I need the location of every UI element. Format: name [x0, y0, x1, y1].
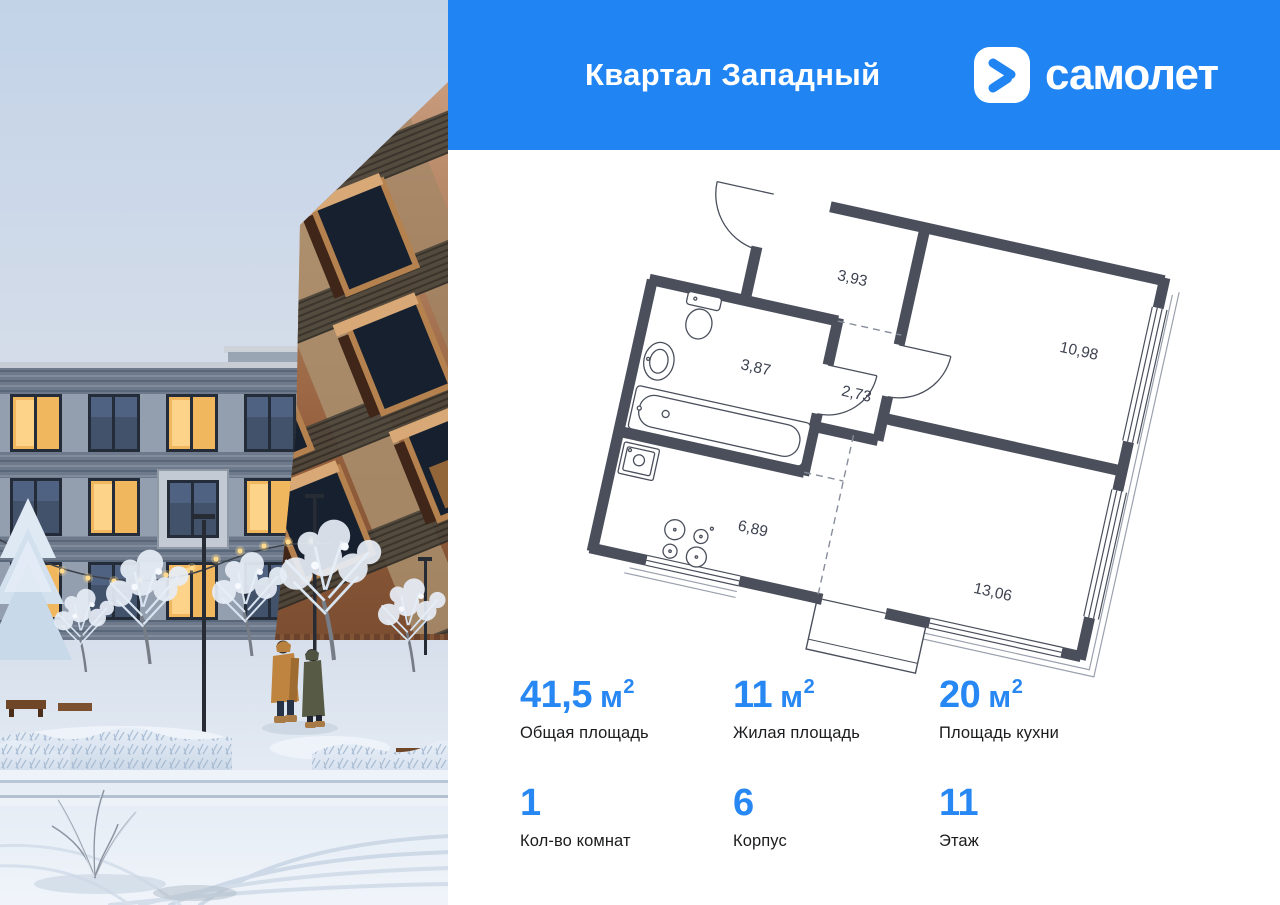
steps — [0, 770, 448, 808]
stat-rooms-count: 1 Кол-во комнат — [520, 784, 733, 851]
header: Квартал Западный самолет — [448, 0, 1280, 150]
courtyard-photo — [0, 0, 448, 905]
stat-building: 6 Корпус — [733, 784, 939, 851]
floor-plan-drawing: 3,93 10,98 3,87 2,73 6,89 13,06 — [548, 172, 1208, 702]
stat-living-area: 11м2 Жилая площадь — [733, 676, 939, 743]
stat-living-area-label: Жилая площадь — [733, 724, 939, 743]
stat-floor: 11 Этаж — [939, 784, 1159, 851]
stat-building-label: Корпус — [733, 832, 939, 851]
stats-row-areas: 41,5м2 Общая площадь 11м2 Жилая площадь … — [520, 676, 1159, 743]
samolet-chevron-glyph — [974, 47, 1030, 103]
brand-name: самолет — [1045, 53, 1218, 97]
stat-kitchen-area-value: 20 — [939, 674, 980, 716]
stat-living-area-value: 11 — [733, 674, 772, 716]
stat-total-area-value: 41,5 — [520, 674, 592, 716]
stat-rooms-count-label: Кол-во комнат — [520, 832, 733, 851]
stats-row-details: 1 Кол-во комнат 6 Корпус 11 Этаж — [520, 784, 1159, 851]
brand-logo: самолет — [974, 0, 1218, 150]
kitchen-sink-icon — [618, 442, 660, 481]
stat-floor-value: 11 — [939, 782, 978, 824]
info-panel: Квартал Западный самолет — [448, 0, 1280, 905]
stat-kitchen-area-label: Площадь кухни — [939, 724, 1159, 743]
project-title: Квартал Западный — [585, 0, 880, 150]
people-shadow — [262, 721, 338, 735]
stat-floor-label: Этаж — [939, 832, 1159, 851]
flyer: Квартал Западный самолет — [0, 0, 1280, 905]
floor-plan: 3,93 10,98 3,87 2,73 6,89 13,06 — [548, 172, 1208, 702]
samolet-chevron-icon — [974, 47, 1030, 103]
stat-building-value: 6 — [733, 782, 754, 824]
stat-total-area: 41,5м2 Общая площадь — [520, 676, 733, 743]
stat-total-area-label: Общая площадь — [520, 724, 733, 743]
stat-kitchen-area: 20м2 Площадь кухни — [939, 676, 1159, 743]
stat-rooms-count-value: 1 — [520, 782, 541, 824]
